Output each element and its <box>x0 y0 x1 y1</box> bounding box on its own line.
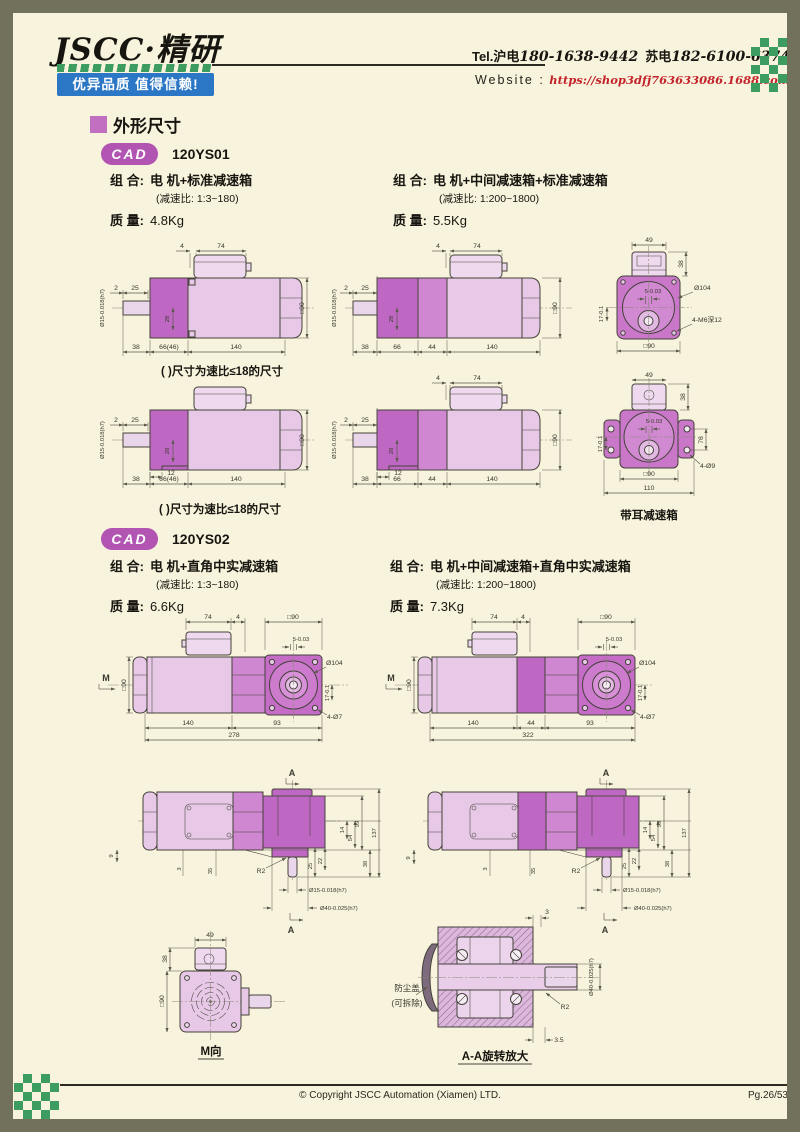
view-arrow-label: M <box>387 673 395 683</box>
section-label: A <box>603 768 610 778</box>
key-dim-label: 5-0.03 <box>645 289 661 295</box>
dim-label: 38 <box>162 955 169 963</box>
shaft-dia-label: Ø15-0.018(h7) <box>100 289 106 327</box>
dim-label: 38 <box>665 861 671 867</box>
drawing-ys02-aa-section: 3 防尘盖 (可拆除) R2 Ø40-0.025(h7) 3.5 <box>391 909 602 1044</box>
note-speed-ratio: ( )尺寸为速比≤18的尺寸 <box>159 502 281 516</box>
dim-label: 14 <box>340 826 346 833</box>
radius-label: R2 <box>572 868 581 875</box>
dim-label: 322 <box>522 732 534 739</box>
dim-label: 38 <box>361 344 369 351</box>
dim-label: 54 <box>348 834 354 841</box>
dim-label: 140 <box>230 344 242 351</box>
dim-label: 38 <box>132 344 140 351</box>
dim-label: 25 <box>131 285 139 292</box>
dim-label: 66 <box>393 344 401 351</box>
dim-label: 25 <box>131 417 139 424</box>
technical-drawings: 4 74 2 25 Ø15-0.018(h7) 28 38 66(46) 140… <box>0 0 800 1132</box>
dim-label: 99 <box>355 821 361 827</box>
dim-label: 28 <box>165 448 171 454</box>
dim-label: 3 <box>545 909 549 916</box>
dim-label: □90 <box>643 343 655 350</box>
page-number: Pg.26/53 <box>0 1090 788 1101</box>
dim-label: □90 <box>121 679 128 691</box>
dim-label: □90 <box>552 434 559 446</box>
dim-label: 28 <box>165 316 171 322</box>
dim-label: 137 <box>372 828 378 838</box>
dim-label: 49 <box>645 372 653 379</box>
dim-label: 4 <box>436 243 440 250</box>
dim-label: 9 <box>406 856 412 859</box>
drawing-ys01-end-view: 5-0.03 49 38 Ø104 4-M6深12 □90 17-0.1 <box>599 237 722 354</box>
dim-label: 66 <box>393 476 401 483</box>
radius-label: R2 <box>257 868 266 875</box>
dim-label: 2 <box>344 417 348 424</box>
dust-cover-label: 防尘盖 <box>394 983 420 993</box>
flange-dia-label: Ø104 <box>639 660 656 667</box>
drawing-ys01-intermediate-side: 4 74 2 25 Ø15-0.018(h7) 28 38 66 44 140 … <box>332 243 572 356</box>
dim-label: 9 <box>109 854 115 857</box>
dim-label: 35 <box>531 868 537 874</box>
drawing-ys01-intermediate-foot-side: 4 74 2 25 Ø15-0.018(h7) 28 12 38 66 44 1… <box>332 375 572 488</box>
shaft-dia-label: Ø15-0.018(h7) <box>100 421 106 459</box>
section-label: A <box>288 925 295 935</box>
dim-label: 66(46) <box>159 344 179 351</box>
dim-label: 3.5 <box>554 1037 564 1044</box>
tap-label: 4-M6深12 <box>692 315 722 324</box>
dim-label: 66(46) <box>159 476 179 483</box>
shaft-dia-label: Ø15-0.018(h7) <box>623 888 661 894</box>
view-arrow-label: M <box>102 673 110 683</box>
dim-label: 140 <box>230 476 242 483</box>
shaft-dia-label: Ø40-0.025(h7) <box>634 906 672 912</box>
flange-dia-label: Ø104 <box>326 660 343 667</box>
dim-label: 2 <box>114 417 118 424</box>
holes-label: 4-Ø7 <box>640 714 655 721</box>
dim-label: 25 <box>622 863 628 869</box>
aa-section-caption: A-A旋转放大 <box>462 1049 529 1063</box>
dim-label: 22 <box>632 858 638 864</box>
dim-label: 44 <box>428 344 436 351</box>
dim-label: 2 <box>344 285 348 292</box>
dim-label: 35 <box>208 868 214 874</box>
dim-label: 38 <box>363 861 369 867</box>
dim-label: 38 <box>678 260 685 268</box>
dim-label: 49 <box>206 932 214 939</box>
dim-label: 38 <box>680 393 687 401</box>
dim-label: 3 <box>483 867 489 870</box>
drawing-ys01-standard-foot-side: 2 25 Ø15-0.018(h7) 28 12 38 66(46) 140 □… <box>100 387 316 488</box>
drawing-ys01-ear-gearbox-end: 5-0.03 49 38 17-0.1 76 4-Ø9 □90 110 <box>596 372 715 496</box>
dim-label: 110 <box>644 485 655 492</box>
dim-label: 17-0.1 <box>598 436 604 452</box>
drawing-ys02-m-view: 49 38 □90 <box>159 931 285 1040</box>
dim-label: 3 <box>177 867 183 870</box>
dim-label: 17-0.1 <box>325 685 331 701</box>
dim-label: 140 <box>182 720 194 727</box>
dim-label: 38 <box>132 476 140 483</box>
dim-label: 76 <box>698 436 705 444</box>
dim-label: 25 <box>361 285 369 292</box>
drawing-ys02-rightangle-top: 5-0.03 74 4 □90 Ø104 M □90 140 93 278 17… <box>99 614 348 742</box>
dim-label: 4 <box>521 614 525 621</box>
drawing-ys02-rightangle-intermediate-top: 5-0.03 74 4 □90 Ø104 M □90 140 44 93 322 <box>386 614 656 742</box>
dim-label: 4 <box>436 375 440 382</box>
dim-label: 38 <box>361 476 369 483</box>
dim-label: □90 <box>600 614 612 621</box>
dim-label: 44 <box>527 720 535 727</box>
dim-label: □90 <box>643 471 655 478</box>
dim-label: 54 <box>651 834 657 841</box>
dim-label: □90 <box>299 302 306 314</box>
dim-label: 4 <box>180 243 184 250</box>
dim-label: □90 <box>406 679 413 691</box>
flange-dia-label: Ø104 <box>694 285 711 292</box>
dim-label: 49 <box>645 237 653 244</box>
note-speed-ratio: ( )尺寸为速比≤18的尺寸 <box>161 364 283 378</box>
dim-label: 74 <box>473 375 481 382</box>
dim-label: 93 <box>273 720 281 727</box>
footer-rule <box>60 1084 792 1086</box>
section-label: A <box>602 925 609 935</box>
dim-label: 99 <box>657 821 663 827</box>
dim-label: 74 <box>204 614 212 621</box>
dim-label: 17-0.1 <box>599 306 605 322</box>
key-dim-label: 5-0.03 <box>293 637 309 643</box>
dim-label: 93 <box>586 720 594 727</box>
dim-label: 22 <box>318 858 324 864</box>
drawing-ys01-standard-side: 4 74 2 25 Ø15-0.018(h7) 28 38 66(46) 140… <box>100 243 316 356</box>
dim-label: 28 <box>389 316 395 322</box>
dim-label: □90 <box>159 995 166 1007</box>
dim-label: 14 <box>643 826 649 833</box>
m-view-caption: M向 <box>200 1044 221 1058</box>
ear-gearbox-caption: 带耳减速箱 <box>620 508 678 522</box>
dim-label: 140 <box>467 720 479 727</box>
section-label: A <box>289 768 296 778</box>
key-dim-label: 5-0.03 <box>646 419 662 425</box>
shaft-dia-label: Ø40-0.025(h7) <box>320 906 358 912</box>
dust-cover-label: (可拆除) <box>391 998 422 1008</box>
catalog-page: JSCC·精研 优异品质 值得信赖! Tel.沪电180-1638-9442苏电… <box>0 0 800 1132</box>
dim-label: 74 <box>217 243 225 250</box>
shaft-dia-label: Ø15-0.018(h7) <box>332 421 338 459</box>
key-dim-label: 5-0.03 <box>606 637 622 643</box>
dim-label: 25 <box>361 417 369 424</box>
shaft-dia-label: Ø40-0.025(h7) <box>589 958 595 996</box>
dim-label: 44 <box>428 476 436 483</box>
dim-label: 17-0.1 <box>638 685 644 701</box>
radius-label: R2 <box>561 1004 570 1011</box>
drawing-ys02-side-section-left: A A 9 3 35 R2 25 22 14 54 99 38 137 <box>109 768 381 935</box>
dim-label: 4 <box>236 614 240 621</box>
dim-label: 28 <box>389 448 395 454</box>
dim-label: 137 <box>682 828 688 838</box>
shaft-dia-label: Ø15-0.018(h7) <box>332 289 338 327</box>
dim-label: □90 <box>299 434 306 446</box>
shaft-dia-label: Ø15-0.018(h7) <box>309 888 347 894</box>
holes-label: 4-Ø7 <box>327 714 342 721</box>
dim-label: 74 <box>473 243 481 250</box>
dim-label: 278 <box>228 732 240 739</box>
dim-label: 25 <box>308 863 314 869</box>
dim-label: □90 <box>287 614 299 621</box>
dim-label: 140 <box>486 344 498 351</box>
dim-label: 140 <box>486 476 498 483</box>
dim-label: 2 <box>114 285 118 292</box>
holes-label: 4-Ø9 <box>700 463 715 470</box>
dim-label: 74 <box>490 614 498 621</box>
dim-label: □90 <box>552 302 559 314</box>
